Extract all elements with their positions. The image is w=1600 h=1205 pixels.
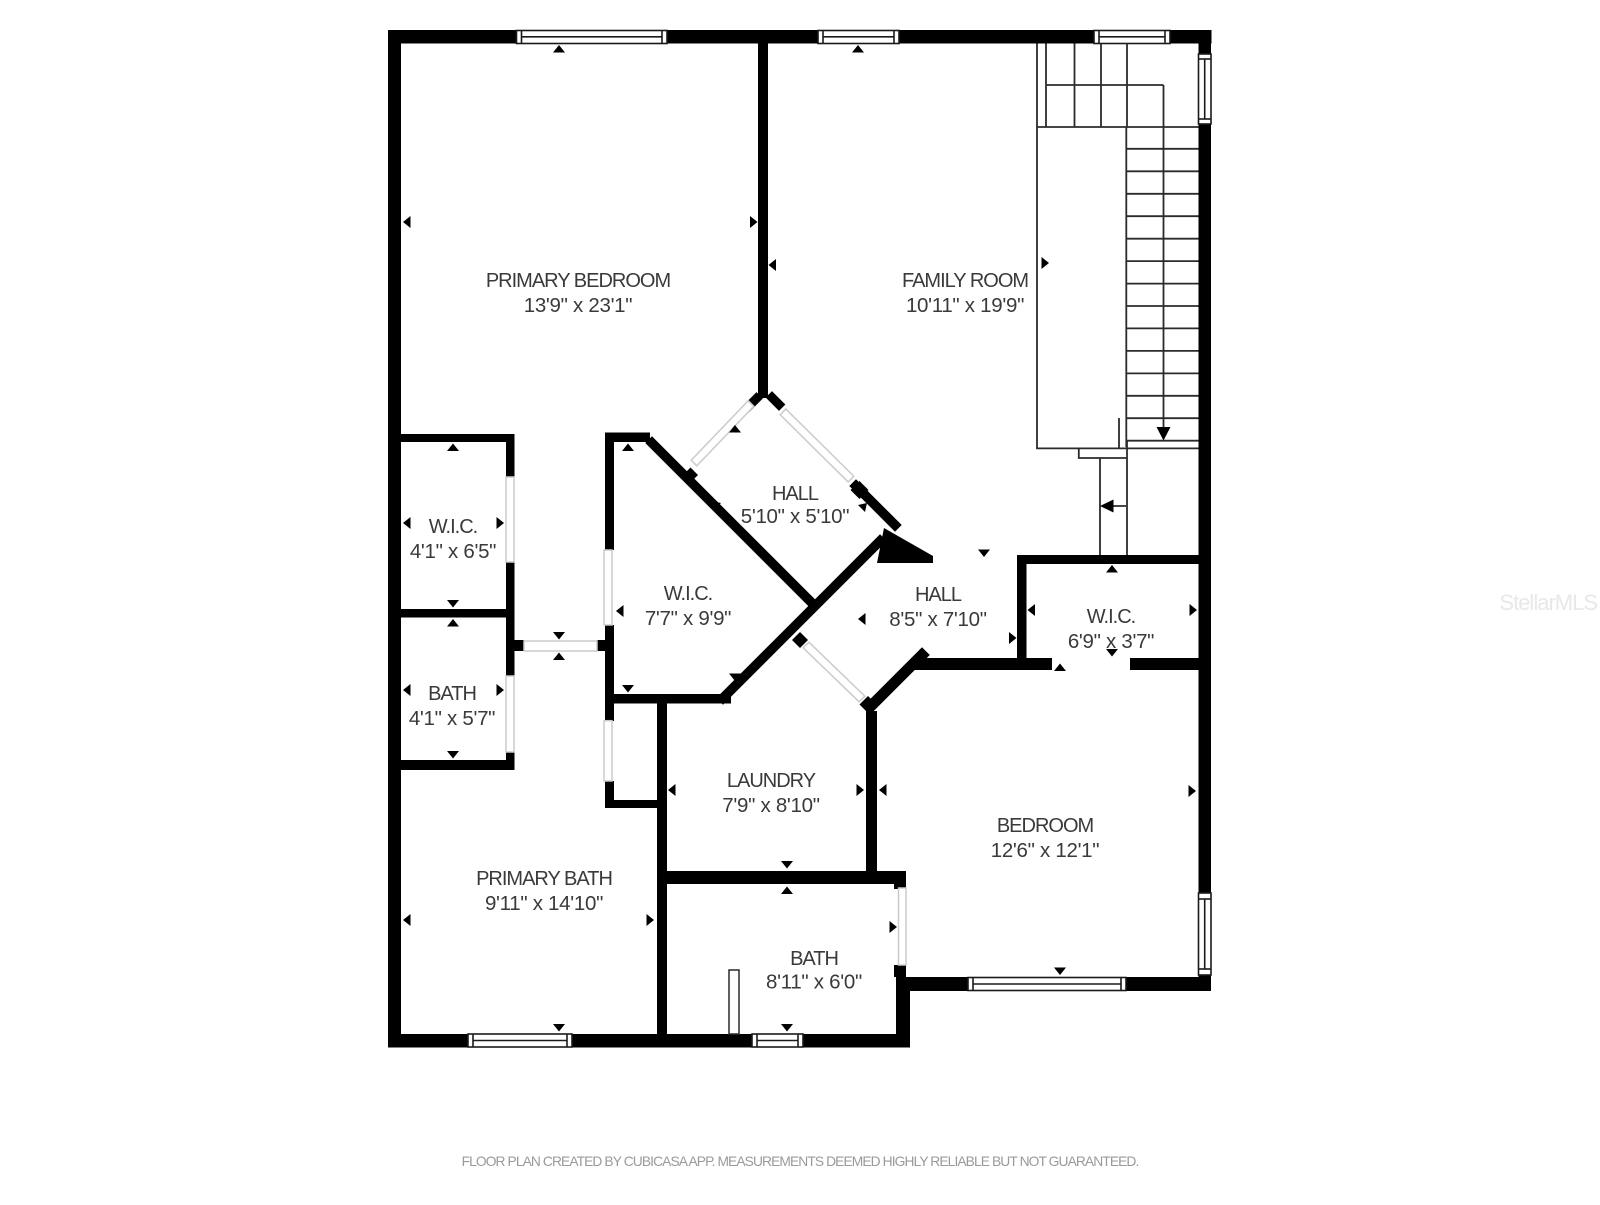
svg-text:BATH: BATH — [428, 683, 476, 705]
svg-text:5'10" x 5'10": 5'10" x 5'10" — [741, 505, 850, 528]
svg-text:LAUNDRY: LAUNDRY — [727, 770, 816, 792]
svg-text:7'7" x 9'9": 7'7" x 9'9" — [645, 607, 731, 630]
svg-text:W.I.C.: W.I.C. — [429, 516, 477, 538]
svg-text:8'5" x 7'10": 8'5" x 7'10" — [889, 608, 986, 631]
svg-text:PRIMARY BEDROOM: PRIMARY BEDROOM — [486, 270, 671, 292]
svg-text:4'1" x 5'7": 4'1" x 5'7" — [409, 707, 495, 730]
svg-text:8'11" x 6'0": 8'11" x 6'0" — [766, 971, 862, 994]
svg-text:BATH: BATH — [790, 948, 838, 970]
svg-text:13'9" x 23'1": 13'9" x 23'1" — [524, 294, 633, 317]
svg-text:FAMILY ROOM: FAMILY ROOM — [902, 270, 1028, 292]
svg-text:StellarMLS: StellarMLS — [1499, 590, 1597, 615]
svg-text:FLOOR PLAN CREATED BY CUBICASA: FLOOR PLAN CREATED BY CUBICASA APP. MEAS… — [462, 1154, 1139, 1169]
svg-text:12'6" x 12'1": 12'6" x 12'1" — [991, 839, 1100, 862]
svg-text:BEDROOM: BEDROOM — [997, 815, 1094, 837]
svg-text:HALL: HALL — [915, 584, 962, 606]
svg-text:10'11" x 19'9": 10'11" x 19'9" — [906, 294, 1024, 317]
svg-text:4'1" x 6'5": 4'1" x 6'5" — [410, 540, 496, 563]
svg-text:9'11" x 14'10": 9'11" x 14'10" — [485, 892, 603, 915]
svg-text:W.I.C.: W.I.C. — [664, 583, 712, 605]
svg-text:6'9" x 3'7": 6'9" x 3'7" — [1068, 630, 1154, 653]
svg-text:HALL: HALL — [772, 483, 819, 505]
svg-text:W.I.C.: W.I.C. — [1087, 606, 1135, 628]
svg-text:PRIMARY BATH: PRIMARY BATH — [476, 868, 612, 890]
svg-text:7'9" x 8'10": 7'9" x 8'10" — [722, 794, 819, 817]
